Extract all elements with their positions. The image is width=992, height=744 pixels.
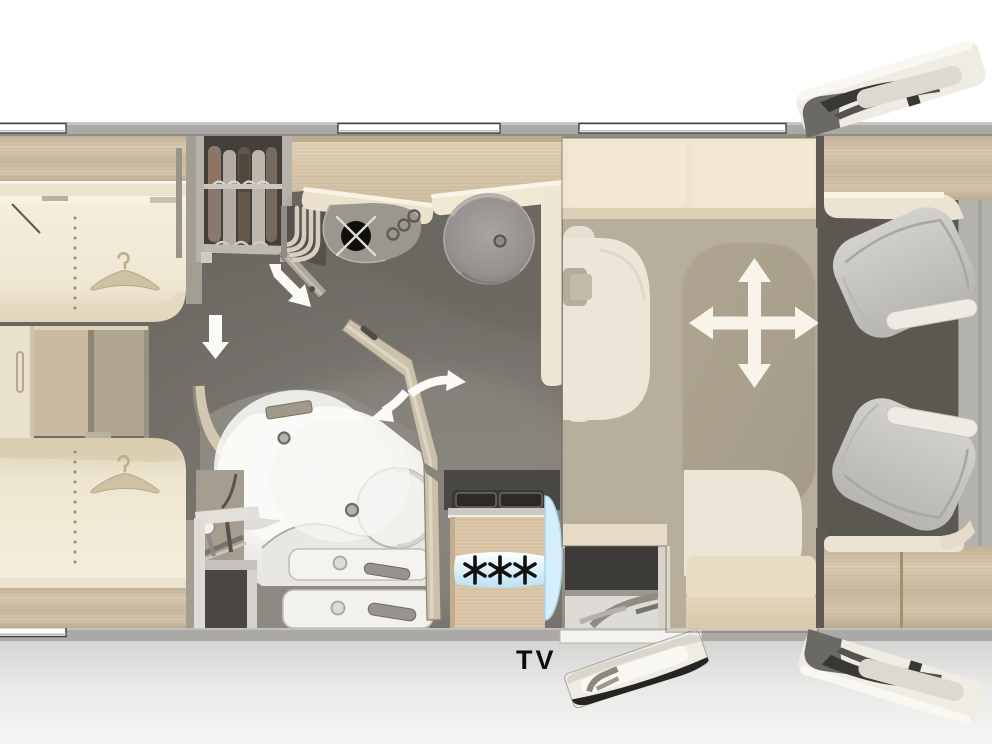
svg-text:TV: TV (516, 645, 557, 675)
